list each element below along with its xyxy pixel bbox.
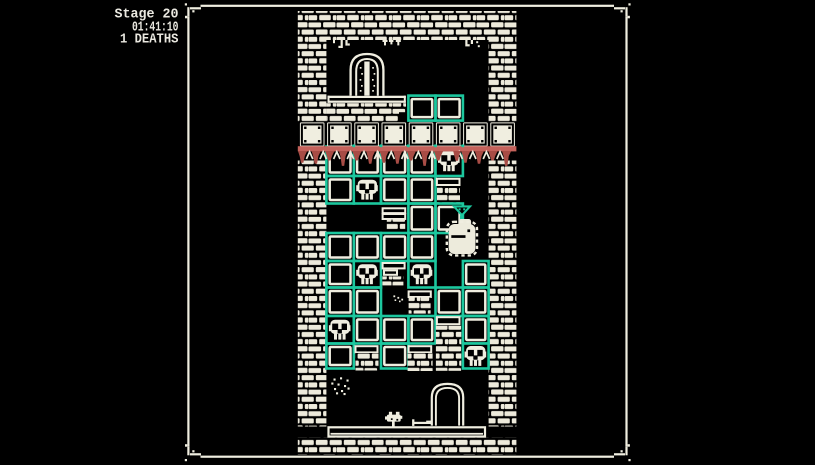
svg-text:1 DEATHS: 1 DEATHS [120, 33, 179, 48]
